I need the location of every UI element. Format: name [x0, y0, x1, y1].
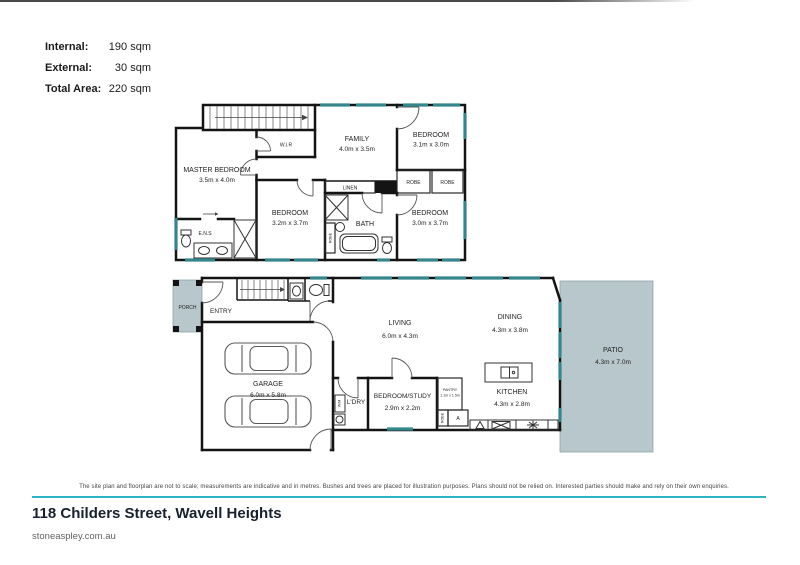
garage-walls — [202, 322, 333, 430]
car-icon — [225, 396, 311, 427]
car-icon — [225, 343, 311, 374]
room-dims-dining: 4.3m x 3.8m — [492, 327, 528, 334]
toilet-icon — [310, 285, 330, 296]
room-label-dining: DINING — [498, 314, 523, 321]
property-address: 118 Childers Street, Wavell Heights — [32, 505, 282, 522]
room-label-bath: BATH — [356, 221, 374, 228]
room-dims-living: 6.0m x 4.3m — [382, 333, 418, 340]
ground-outer-walls — [202, 278, 560, 450]
agency-website: stoneaspley.com.au — [32, 531, 116, 542]
shower-icon — [234, 220, 256, 258]
label-appliance-cupboard: A — [456, 416, 460, 422]
area-label: Internal: — [45, 41, 88, 53]
room-label-bedroom-top-right: BEDROOM — [413, 132, 449, 139]
toilet-icon — [181, 230, 191, 247]
basin-icon — [336, 223, 345, 232]
area-value: 30 sqm — [115, 62, 151, 74]
room-dims-master-bedroom: 3.5m x 4.0m — [199, 177, 235, 184]
area-row-internal: Internal: 190 sqm — [45, 41, 151, 53]
room-label-ens: E.N.S — [198, 231, 212, 237]
room-label-bedroom-bottom-right: BEDROOM — [412, 210, 448, 217]
label-washing-machine: W/M — [338, 400, 342, 407]
ensuite — [176, 212, 256, 258]
room-dims-family: 4.0m x 3.5m — [339, 146, 375, 153]
area-value: 220 sqm — [109, 83, 151, 95]
room-dims-bedroom-bottom-right: 3.0m x 3.7m — [412, 220, 448, 227]
kitchen-island — [485, 363, 532, 382]
area-row-total: Total Area: 220 sqm — [45, 83, 151, 95]
wir-room — [241, 130, 316, 260]
area-label: Total Area: — [45, 83, 101, 95]
oven-icon — [527, 421, 539, 429]
area-row-external: External: 30 sqm — [45, 62, 151, 74]
room-label-patio: PATIO — [603, 347, 624, 354]
room-label-entry: ENTRY — [210, 308, 233, 315]
wall-block — [375, 181, 397, 193]
room-label-wir: W.I.R — [280, 143, 293, 149]
room-dims-patio: 4.3m x 7.0m — [595, 359, 631, 366]
room-label-pantry: PANTRY — [443, 388, 458, 392]
floorplan-page: Internal: 190 sqm External: 30 sqm Total… — [0, 0, 800, 565]
room-dims-garage: 6.0m x 5.8m — [250, 392, 286, 399]
teal-divider — [32, 496, 766, 498]
room-label-robe: ROBE — [441, 412, 445, 423]
room-label-linen: LINEN — [343, 186, 358, 192]
room-dims-bedroom-top-right: 3.1m x 3.0m — [413, 142, 449, 149]
area-summary: Internal: 190 sqm External: 30 sqm Total… — [45, 41, 151, 104]
room-label-robe-a: ROBE — [406, 180, 421, 186]
room-label-bedroom-study: BEDROOM/STUDY — [374, 393, 432, 400]
dishwasher-icon — [476, 422, 484, 429]
upper-floor-plan: MASTER BEDROOM 3.5m x 4.0m W.I.R FAMILY … — [170, 93, 475, 265]
laundry-tub-icon — [334, 414, 345, 425]
room-label-kitchen: KITCHEN — [497, 389, 528, 396]
room-dims-pantry: 1.1m x 1.5m — [440, 394, 460, 398]
room-label-garage: GARAGE — [253, 381, 283, 388]
patio-area — [560, 281, 653, 452]
room-dims-bedroom-middle: 3.2m x 3.7m — [272, 220, 308, 227]
stairs-icon — [237, 278, 288, 300]
area-label: External: — [45, 62, 92, 74]
room-label-porch: PORCH — [178, 305, 196, 311]
shower-icon — [325, 195, 348, 220]
area-value: 190 sqm — [109, 41, 151, 53]
page-top-edge — [0, 0, 695, 2]
bathtub-icon — [340, 234, 378, 253]
powder-room — [288, 278, 333, 321]
vanity-icon — [194, 243, 232, 258]
room-dims-bedroom-study: 2.9m x 2.2m — [385, 405, 421, 412]
stairs-icon — [203, 105, 315, 157]
room-label-family: FAMILY — [345, 136, 370, 143]
sink-icon — [501, 367, 518, 378]
room-label-robe-c: ROBE — [329, 232, 333, 243]
room-label-robe-b: ROBE — [440, 180, 455, 186]
room-dims-kitchen: 4.3m x 2.8m — [494, 401, 530, 408]
cooktop-icon — [492, 422, 510, 430]
room-label-bedroom-middle: BEDROOM — [272, 210, 308, 217]
room-label-laundry: L'DRY — [347, 399, 366, 406]
toilet-icon — [382, 237, 392, 254]
room-label-master-bedroom: MASTER BEDROOM — [183, 167, 250, 174]
room-label-living: LIVING — [389, 320, 412, 327]
basin-icon — [290, 283, 303, 299]
ground-floor-plan: PORCH ENTRY GARAGE 6.0m x 5.8m LIVING 6.… — [170, 270, 660, 460]
bathroom — [325, 181, 397, 254]
disclaimer-text: The site plan and floorplan are not to s… — [40, 484, 768, 490]
kitchen-bench — [470, 420, 558, 430]
